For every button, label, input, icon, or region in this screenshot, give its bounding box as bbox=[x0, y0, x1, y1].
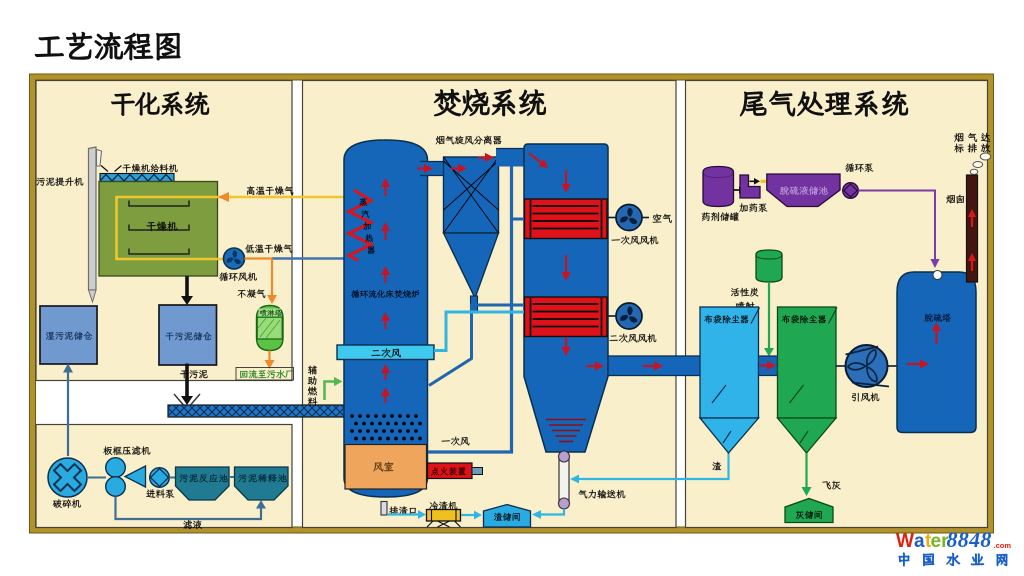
svg-text:W: W bbox=[896, 531, 914, 552]
svg-text:8848: 8848 bbox=[947, 527, 992, 552]
svg-text:.com: .com bbox=[994, 541, 1012, 550]
svg-text:a: a bbox=[914, 531, 925, 552]
